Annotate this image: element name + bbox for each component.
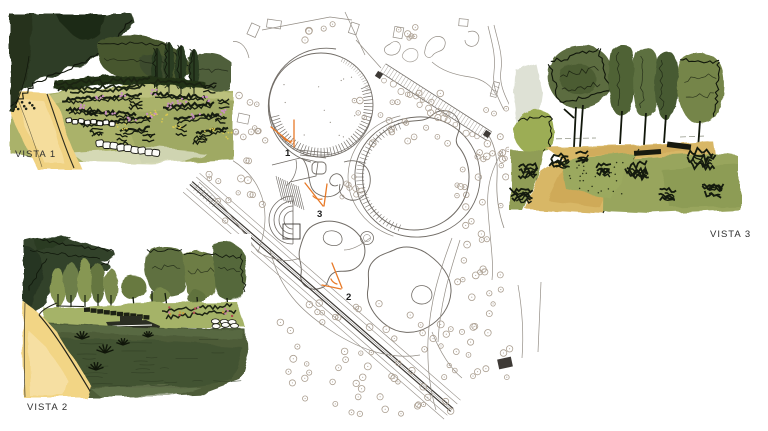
svg-text:VISTA 3: VISTA 3 bbox=[710, 229, 751, 240]
svg-text:1: 1 bbox=[285, 148, 291, 159]
svg-text:VISTA 1: VISTA 1 bbox=[15, 149, 56, 160]
svg-text:VISTA 2: VISTA 2 bbox=[27, 402, 68, 413]
svg-text:2: 2 bbox=[346, 292, 351, 303]
svg-text:3: 3 bbox=[317, 209, 322, 220]
